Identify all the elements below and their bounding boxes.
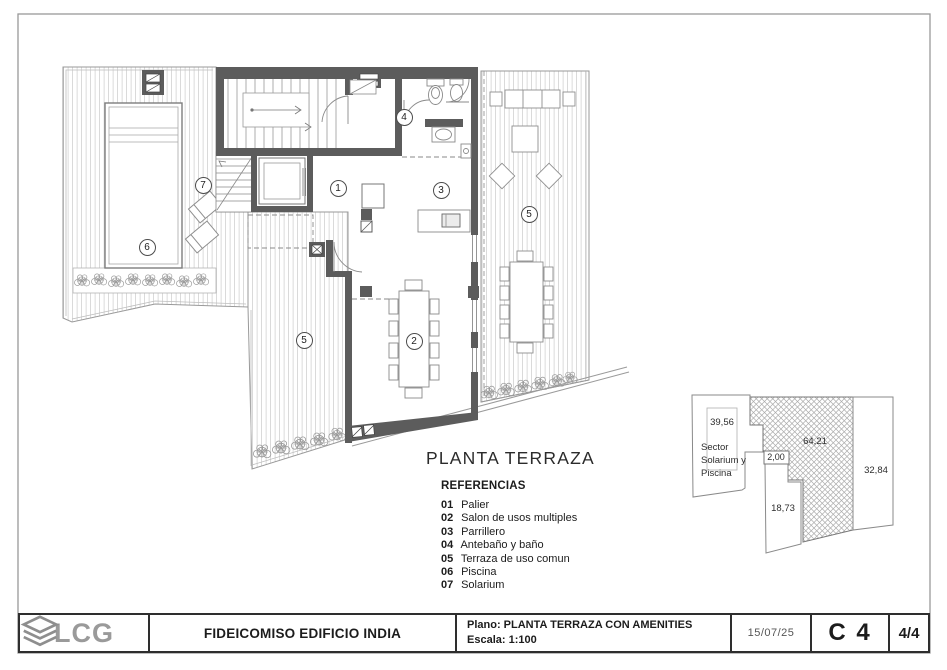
reference-item: 07 Solarium: [441, 579, 577, 592]
exterior-stair: [216, 152, 255, 212]
title-block-project: FIDEICOMISO EDIFICIO INDIA: [150, 615, 457, 651]
interior-stair: [228, 79, 336, 148]
drawing-sheet: PLANTA TERRAZA REFERENCIAS 01 Palier 02 …: [0, 0, 947, 670]
area-value-terrace-lower: 18,73: [766, 503, 800, 514]
plano-line: Plano: PLANTA TERRAZA CON AMENITIES: [467, 618, 692, 633]
title-block-plano: Plano: PLANTA TERRAZA CON AMENITIES Esca…: [457, 615, 732, 651]
area-value-pool: 39,56: [705, 417, 739, 428]
reference-item: 04 Antebaño y baño: [441, 539, 577, 552]
marker-terraza-right: 5: [521, 206, 538, 223]
windows: [473, 235, 477, 372]
reference-label: Parrillero: [461, 526, 505, 538]
marker-parrillero: 3: [433, 182, 450, 199]
reference-num: 04: [441, 539, 458, 552]
reference-num: 06: [441, 566, 458, 579]
reference-label: Terraza de uso comun: [461, 553, 570, 565]
reference-num: 01: [441, 499, 458, 512]
area-value-terrace-right: 32,84: [859, 465, 893, 476]
reference-label: Palier: [461, 499, 489, 511]
planter: [73, 268, 216, 293]
area-value-connector: 2,00: [763, 452, 789, 462]
references-heading: REFERENCIAS: [441, 480, 577, 492]
area-value-covered: 64,21: [798, 436, 832, 447]
title-block-sheet: C 4: [812, 615, 890, 651]
reference-label: Salon de usos multiples: [461, 512, 577, 524]
reference-label: Solarium: [461, 579, 504, 591]
marker-terraza-lower: 5: [296, 332, 313, 349]
reference-item: 01 Palier: [441, 499, 577, 512]
references-panel: REFERENCIAS 01 Palier 02 Salon de usos m…: [441, 480, 577, 593]
title-block-logo-cell: LCG: [20, 615, 150, 651]
reference-item: 02 Salon de usos multiples: [441, 512, 577, 525]
reference-num: 03: [441, 526, 458, 539]
elevator: [259, 158, 306, 204]
reference-num: 02: [441, 512, 458, 525]
reference-label: Piscina: [461, 566, 496, 578]
title-block: LCG FIDEICOMISO EDIFICIO INDIA Plano: PL…: [18, 613, 930, 653]
reference-num: 05: [441, 553, 458, 566]
lcg-logo-icon: [20, 615, 60, 651]
area-terrace-right: [853, 397, 893, 530]
terrace-right: [481, 71, 589, 402]
parrillero-counter: [418, 210, 470, 232]
reference-num: 07: [441, 579, 458, 592]
title-block-date: 15/07/25: [732, 615, 812, 651]
marker-antebano: 4: [396, 109, 413, 126]
reference-item: 05 Terraza de uso comun: [441, 553, 577, 566]
reference-item: 03 Parrillero: [441, 526, 577, 539]
marker-solarium: 7: [195, 177, 212, 194]
reference-label: Antebaño y baño: [460, 539, 543, 551]
marker-salon: 2: [406, 333, 423, 350]
marker-piscina: 6: [139, 239, 156, 256]
reference-item: 06 Piscina: [441, 566, 577, 579]
title-block-page: 4/4: [890, 615, 928, 651]
logo-text: LCG: [54, 618, 114, 649]
escala-line: Escala: 1:100: [467, 633, 537, 648]
plan-title: PLANTA TERRAZA: [426, 448, 595, 469]
bathroom-fixtures: [427, 79, 471, 158]
area-sector-label: Sector Solarium y Piscina: [701, 442, 753, 480]
marker-palier: 1: [330, 180, 347, 197]
